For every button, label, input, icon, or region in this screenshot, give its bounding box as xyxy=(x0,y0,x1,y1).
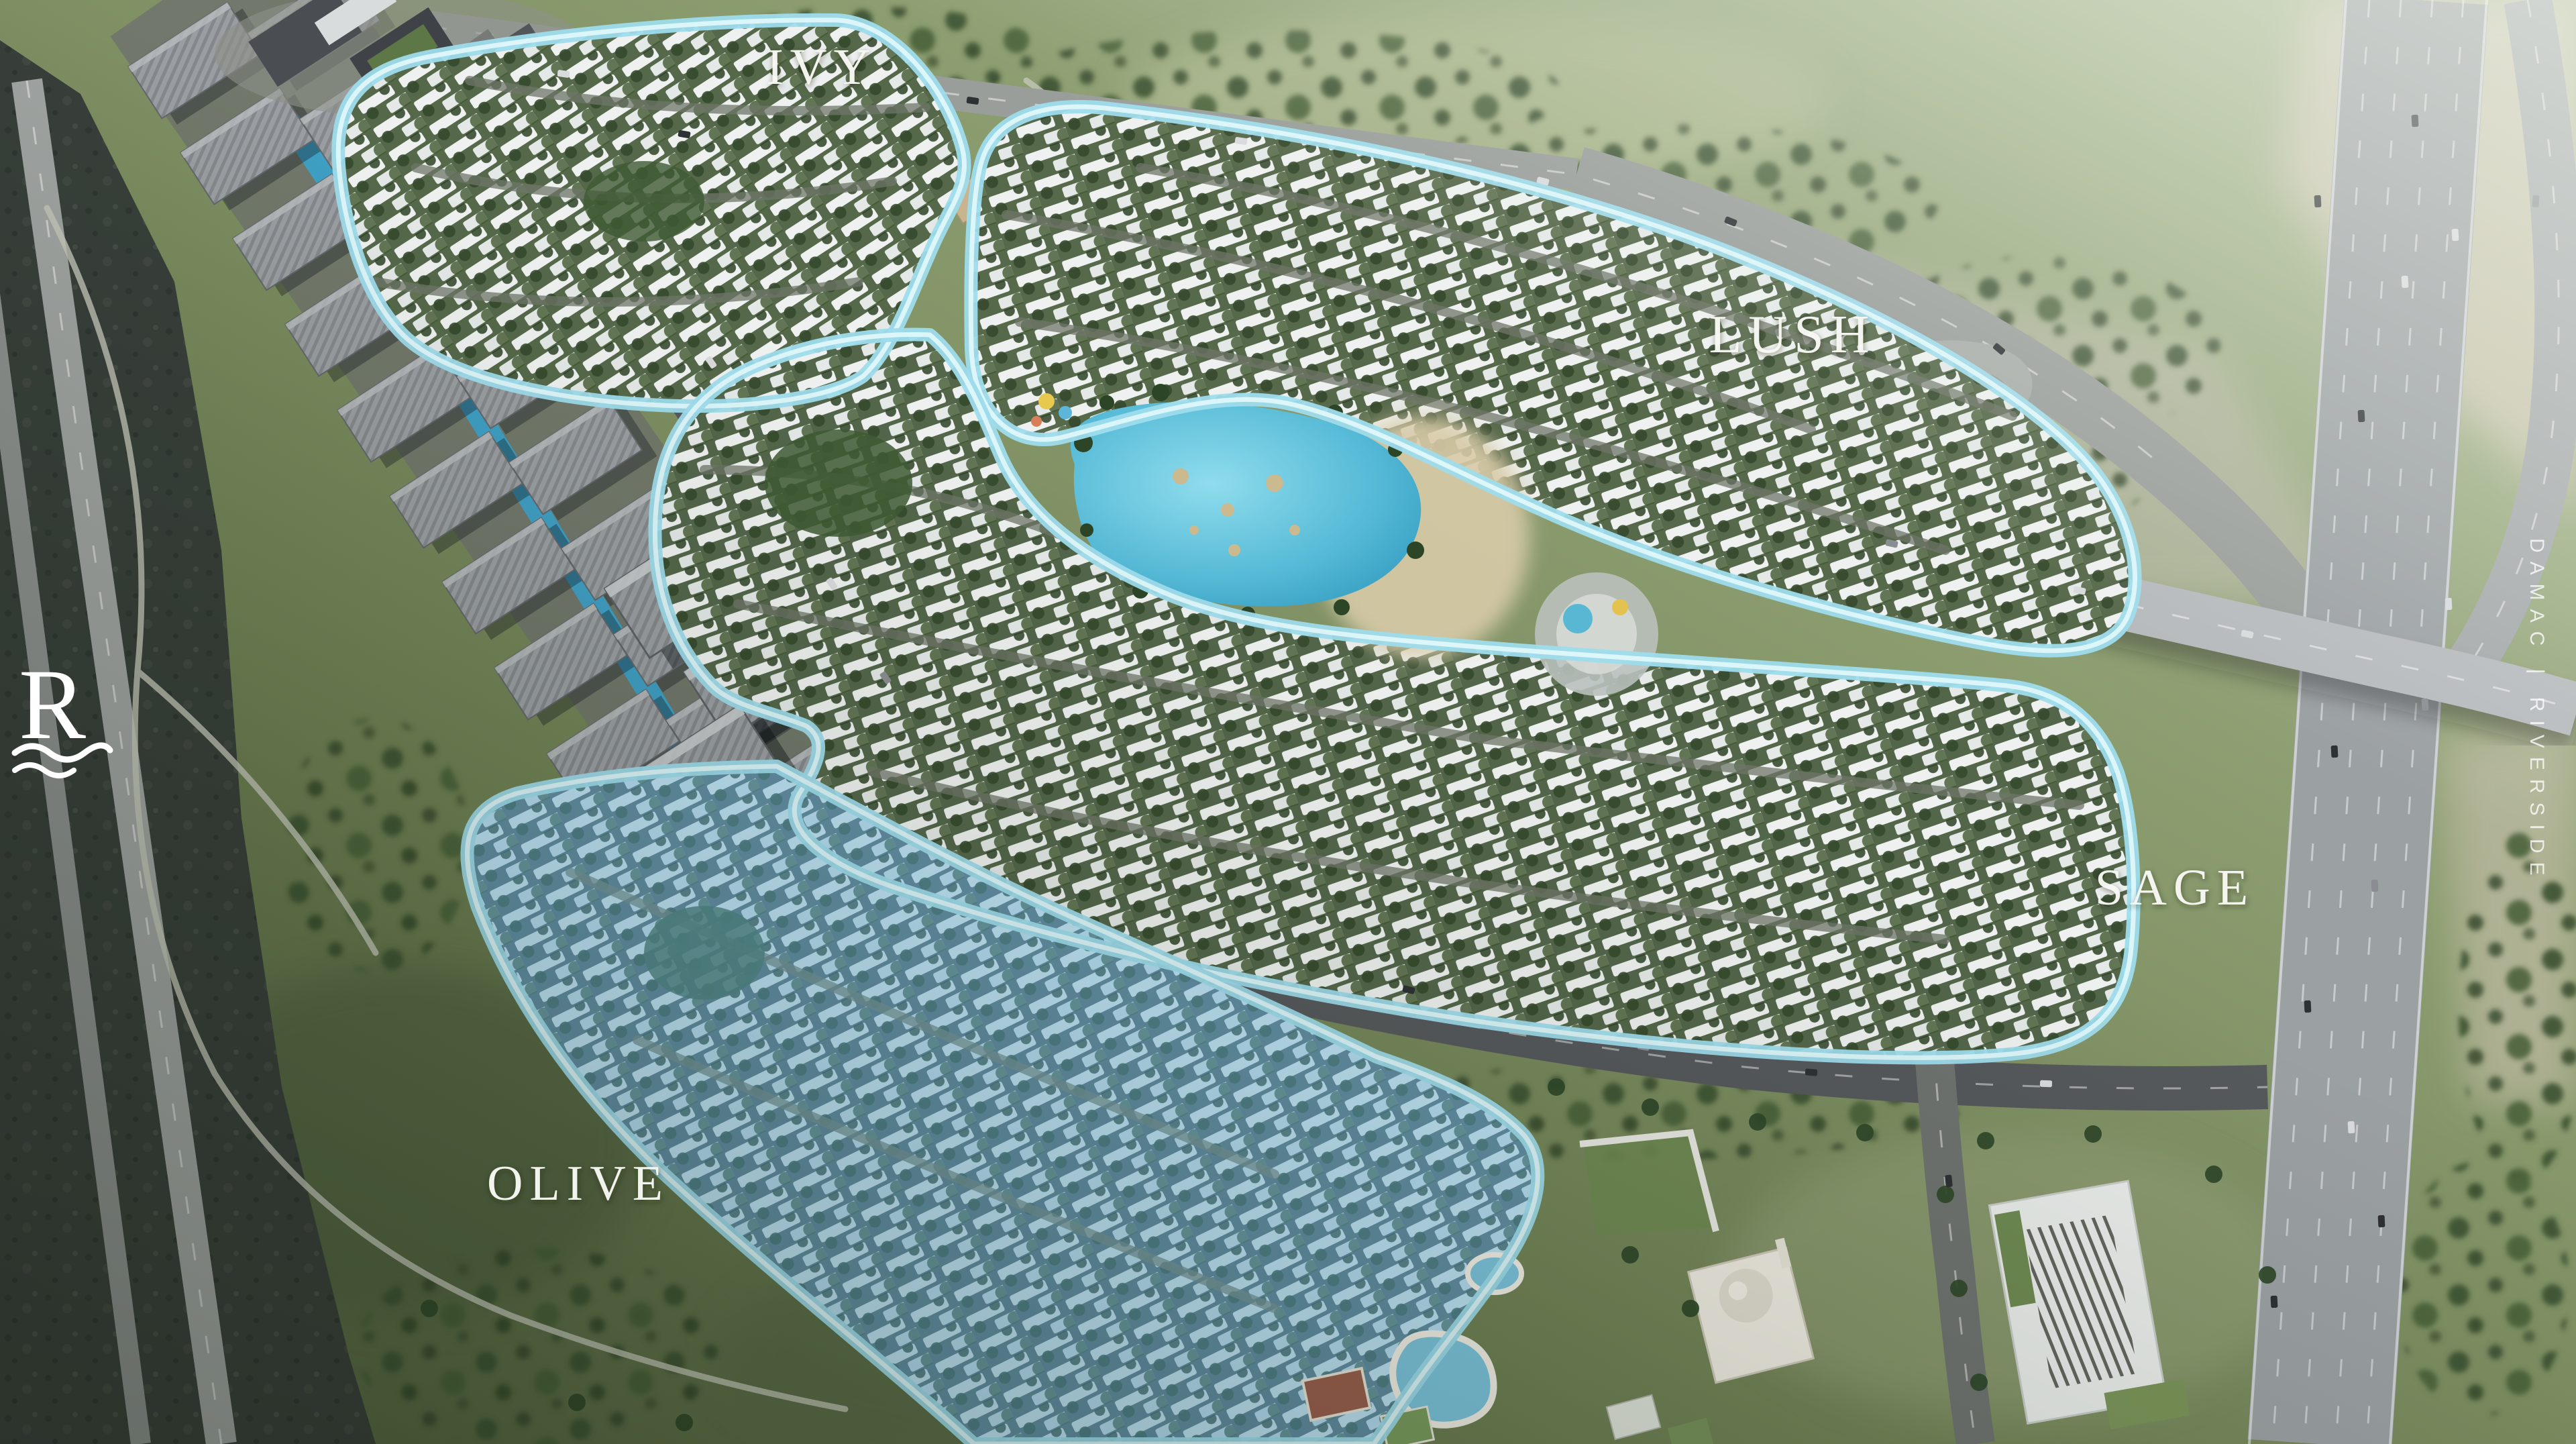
zone-label-lush[interactable]: LUSH xyxy=(1709,305,1876,364)
zone-label-ivy[interactable]: IVY xyxy=(766,39,877,95)
shadow-vignette xyxy=(0,0,2576,1444)
masterplan-aerial-map: IVY LUSH SAGE OLIVE R DAMAC | RIVERSIDE xyxy=(0,0,2576,1444)
vertical-watermark: DAMAC | RIVERSIDE xyxy=(2526,538,2548,884)
zone-label-sage[interactable]: SAGE xyxy=(2095,860,2255,916)
zone-label-olive[interactable]: OLIVE xyxy=(487,1156,669,1211)
